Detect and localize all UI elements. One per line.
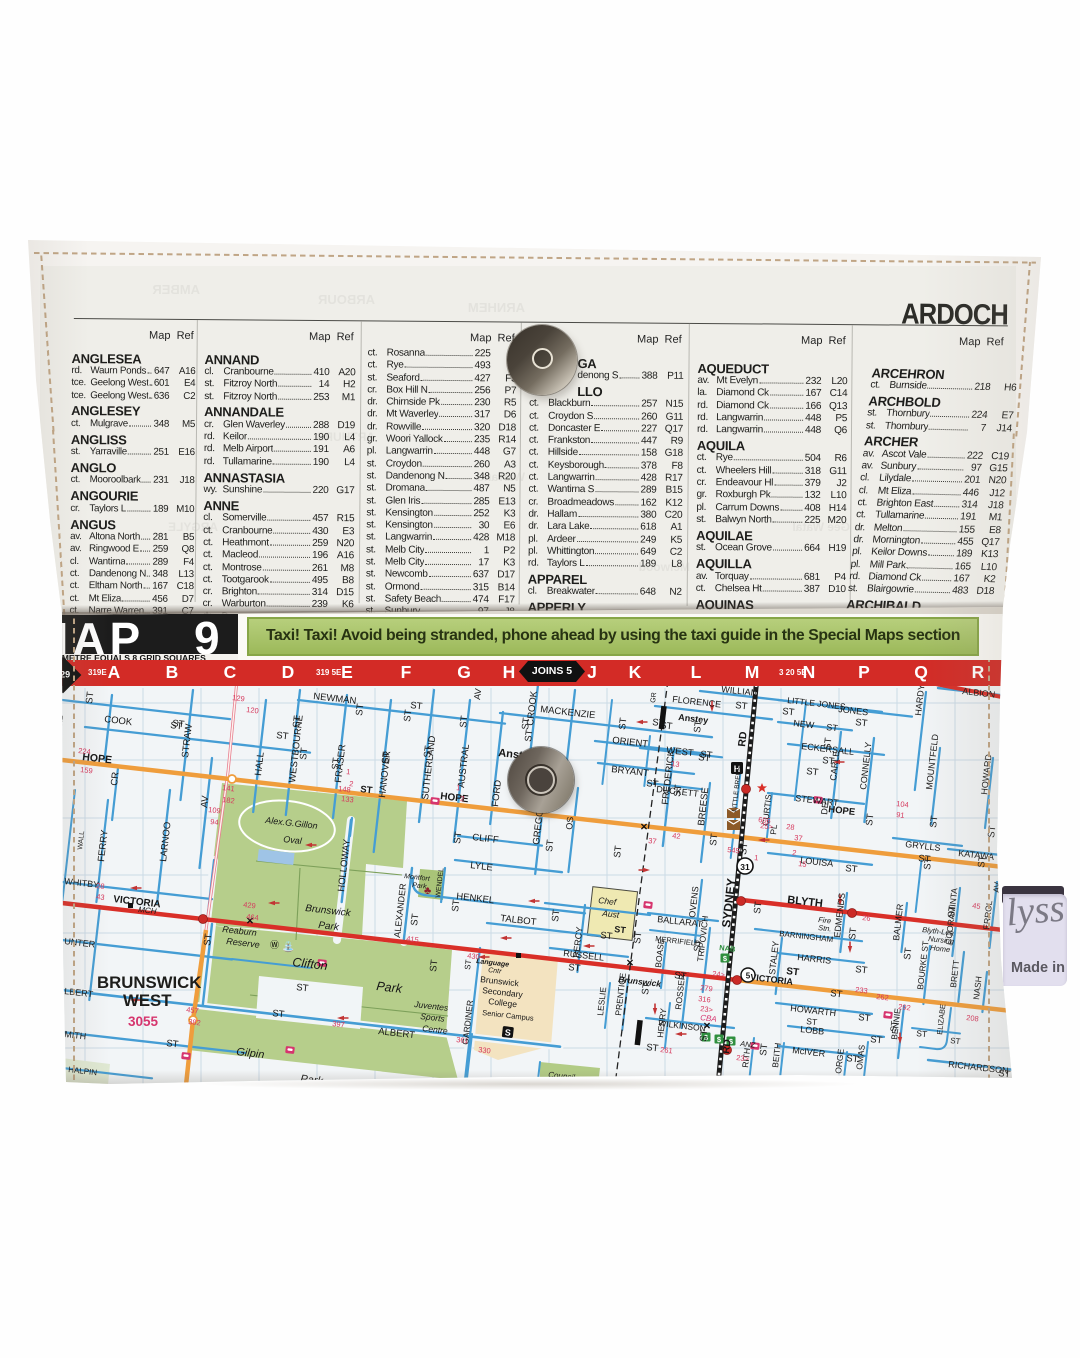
svg-text:WEST: WEST <box>123 991 172 1010</box>
svg-text:42: 42 <box>672 831 681 841</box>
svg-text:Park: Park <box>376 979 404 996</box>
svg-text:Stn.: Stn. <box>818 923 832 933</box>
svg-text:ST: ST <box>830 988 844 1000</box>
svg-text:ST: ST <box>380 751 392 765</box>
svg-text:ST: ST <box>735 700 749 712</box>
svg-text:GR: GR <box>650 692 658 703</box>
svg-text:ST: ST <box>652 717 666 729</box>
svg-text:ST: ST <box>782 706 796 718</box>
svg-text:ST: ST <box>422 745 434 759</box>
svg-text:ST: ST <box>272 1008 286 1020</box>
svg-text:24>: 24> <box>712 969 726 979</box>
svg-text:415: 415 <box>406 934 419 944</box>
svg-text:ST: ST <box>708 833 720 847</box>
svg-text:26: 26 <box>862 913 871 923</box>
svg-text:ST: ST <box>612 845 624 859</box>
svg-text:28: 28 <box>96 881 105 891</box>
svg-text:ST: ST <box>452 831 464 845</box>
svg-text:ST: ST <box>166 1038 180 1050</box>
svg-text:ST: ST <box>752 901 764 915</box>
svg-text:ST: ST <box>870 1034 884 1046</box>
svg-text:ST: ST <box>600 930 614 942</box>
svg-text:BRUNSWICK: BRUNSWICK <box>97 973 201 992</box>
svg-text:208: 208 <box>966 1013 979 1023</box>
svg-text:ST: ST <box>202 933 214 947</box>
svg-text:94: 94 <box>210 817 219 827</box>
svg-text:⛲: ⛲ <box>282 940 294 953</box>
svg-text:43: 43 <box>96 892 105 902</box>
svg-text:133: 133 <box>341 794 354 804</box>
svg-text:ST: ST <box>296 982 310 994</box>
svg-text:23>: 23> <box>700 1004 714 1014</box>
svg-text:ST: ST <box>946 905 958 919</box>
svg-text:28: 28 <box>786 822 795 832</box>
svg-text:279: 279 <box>700 983 713 993</box>
svg-text:129: 129 <box>232 693 245 703</box>
svg-text:ST: ST <box>458 715 470 729</box>
svg-text:606: 606 <box>758 815 771 825</box>
svg-text:ST: ST <box>568 962 582 974</box>
svg-text:ST: ST <box>902 947 914 961</box>
svg-text:ST: ST <box>692 720 704 734</box>
svg-text:ST: ST <box>544 839 556 853</box>
svg-text:ST: ST <box>786 966 800 978</box>
svg-text:NAB: NAB <box>719 943 737 954</box>
svg-text:CR: CR <box>109 771 121 786</box>
svg-text:31: 31 <box>740 862 750 872</box>
svg-text:ST: ST <box>646 1042 660 1054</box>
svg-text:ST: ST <box>864 813 876 827</box>
svg-text:ST: ST <box>674 970 688 982</box>
svg-text:45: 45 <box>972 901 981 911</box>
svg-text:ST: ST <box>855 717 869 729</box>
svg-text:Aust: Aust <box>601 908 621 920</box>
svg-text:ST: ST <box>330 757 342 771</box>
svg-text:464: 464 <box>246 912 259 922</box>
svg-text:ST: ST <box>463 959 473 970</box>
svg-text:ST: ST <box>758 1043 770 1057</box>
svg-text:ST: ST <box>822 737 834 751</box>
svg-text:RD: RD <box>721 1039 734 1055</box>
svg-text:ST: ST <box>640 982 652 996</box>
svg-text:ST: ST <box>826 722 839 733</box>
svg-text:ST: ST <box>614 924 627 935</box>
svg-text:♣: ♣ <box>424 885 431 897</box>
svg-text:OS: OS <box>564 816 575 830</box>
svg-text:ST: ST <box>428 959 440 973</box>
svg-text:120: 120 <box>246 705 259 715</box>
svg-text:224: 224 <box>78 746 91 756</box>
svg-text:ST: ST <box>738 842 750 856</box>
svg-text:ST: ST <box>916 1028 928 1039</box>
svg-text:330: 330 <box>478 1045 491 1055</box>
svg-text:3055: 3055 <box>128 1014 159 1029</box>
svg-text:ST: ST <box>888 1020 899 1032</box>
svg-text:ST: ST <box>845 863 859 875</box>
svg-text:AV: AV <box>472 688 483 700</box>
svg-text:13: 13 <box>671 759 680 769</box>
svg-text:ST: ST <box>672 784 684 798</box>
svg-text:ST: ST <box>520 717 532 731</box>
svg-text:ST: ST <box>858 1012 872 1024</box>
svg-text:ST: ST <box>298 747 310 761</box>
svg-text:ST: ST <box>928 815 940 829</box>
svg-text:ST: ST <box>806 1016 818 1027</box>
svg-text:ST: ST <box>402 709 414 723</box>
svg-text:261: 261 <box>660 1045 673 1055</box>
svg-text:ST: ST <box>806 766 820 778</box>
svg-text:ST: ST <box>360 784 374 796</box>
svg-text:292: 292 <box>898 1002 911 1012</box>
svg-text:✕: ✕ <box>626 958 634 969</box>
svg-text:ST: ST <box>922 857 934 871</box>
svg-text:262: 262 <box>876 992 889 1002</box>
svg-text:397: 397 <box>332 1019 345 1029</box>
svg-text:ST: ST <box>84 691 96 705</box>
svg-text:RD: RD <box>736 730 750 747</box>
svg-text:ST: ST <box>847 927 859 941</box>
svg-text:ST: ST <box>692 939 704 953</box>
svg-text:ST: ST <box>976 855 988 869</box>
svg-text:ST: ST <box>172 718 186 730</box>
svg-text:ST: ST <box>550 909 562 923</box>
svg-text:37: 37 <box>648 836 657 846</box>
svg-text:104: 104 <box>896 799 909 809</box>
svg-text:159: 159 <box>80 765 93 775</box>
svg-text:233: 233 <box>855 985 868 995</box>
svg-text:429: 429 <box>243 900 256 910</box>
svg-text:ST: ST <box>354 703 366 717</box>
svg-text:Ⓦ: Ⓦ <box>270 940 279 950</box>
svg-text:ST: ST <box>450 899 462 913</box>
svg-text:15: 15 <box>798 859 807 869</box>
svg-text:457: 457 <box>186 1005 199 1015</box>
svg-text:S: S <box>504 1027 511 1038</box>
svg-text:ST: ST <box>950 1036 961 1046</box>
svg-text:AV: AV <box>991 881 1002 893</box>
svg-text:141: 141 <box>222 783 235 793</box>
svg-text:23>: 23> <box>736 1053 750 1063</box>
svg-text:ST: ST <box>855 964 869 976</box>
svg-text:ST: ST <box>617 717 629 731</box>
svg-text:✕: ✕ <box>640 822 648 833</box>
svg-text:37: 37 <box>794 833 803 843</box>
svg-text:109: 109 <box>208 805 221 815</box>
svg-text:ST: ST <box>632 931 644 945</box>
svg-text:ST: ST <box>698 1029 710 1043</box>
svg-text:382: 382 <box>188 1017 201 1027</box>
svg-text:182: 182 <box>222 795 235 805</box>
svg-text:ST: ST <box>698 752 712 764</box>
svg-text:ST: ST <box>276 730 290 742</box>
svg-text:ST: ST <box>409 913 421 927</box>
svg-text:316: 316 <box>698 994 711 1004</box>
svg-text:91: 91 <box>896 810 905 820</box>
